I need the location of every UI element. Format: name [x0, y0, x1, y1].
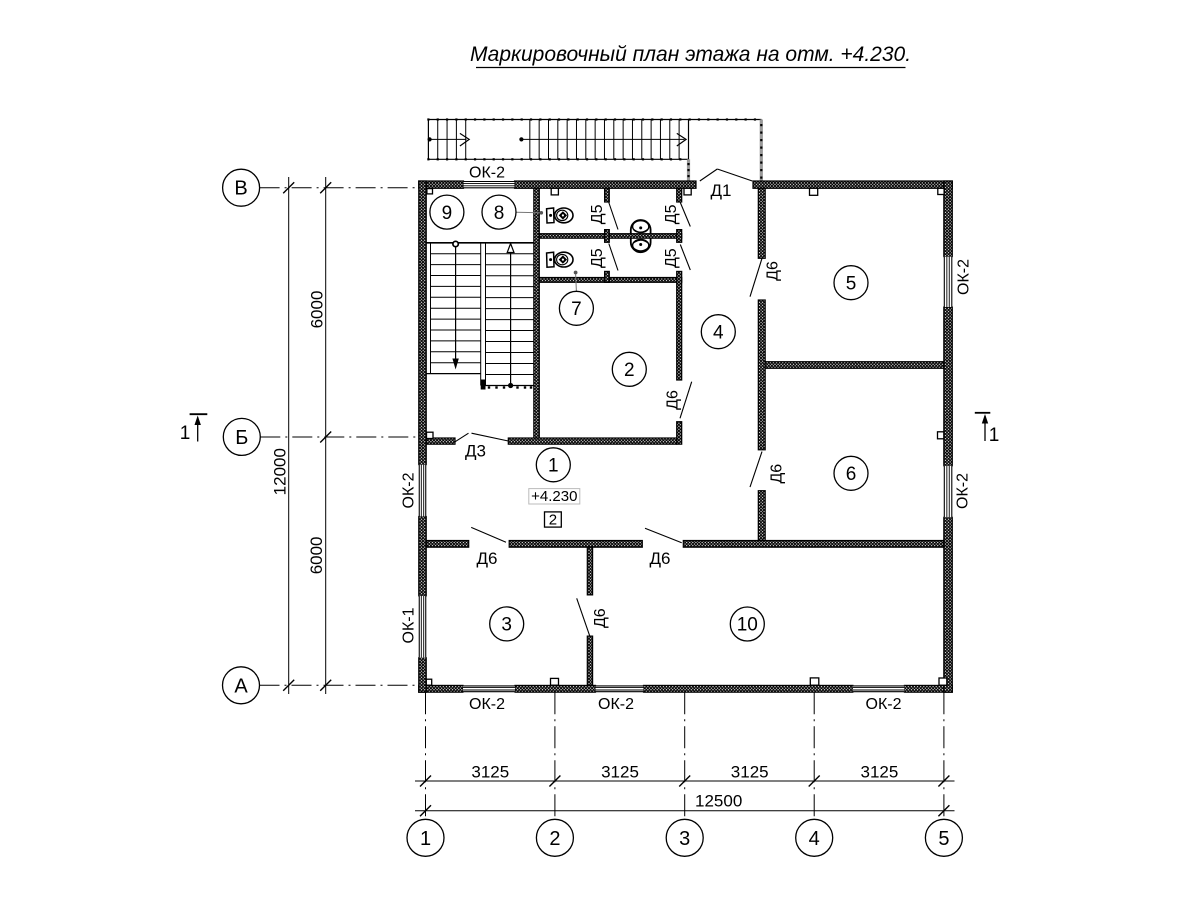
svg-text:1: 1 [548, 455, 559, 476]
svg-text:ОК-2: ОК-2 [469, 165, 505, 182]
svg-text:6: 6 [846, 464, 857, 485]
svg-text:6000: 6000 [308, 291, 327, 329]
svg-text:7: 7 [571, 299, 582, 320]
svg-text:Д6: Д6 [665, 390, 682, 410]
svg-text:Маркировочный план этажа на от: Маркировочный план этажа на отм. +4.230. [470, 43, 911, 66]
svg-text:Д1: Д1 [711, 181, 732, 200]
svg-text:ОК-2: ОК-2 [469, 696, 505, 713]
svg-text:1: 1 [180, 423, 191, 444]
svg-text:4: 4 [809, 828, 820, 850]
svg-text:ОК-2: ОК-2 [954, 473, 971, 509]
svg-text:Д6: Д6 [769, 464, 786, 484]
svg-text:ОК-2: ОК-2 [866, 696, 902, 713]
svg-text:2: 2 [624, 360, 635, 381]
svg-text:1: 1 [420, 828, 431, 850]
svg-text:6000: 6000 [307, 536, 326, 574]
svg-text:3: 3 [679, 828, 690, 850]
svg-text:3: 3 [501, 615, 512, 636]
svg-text:Д5: Д5 [589, 204, 606, 224]
svg-text:ОК-2: ОК-2 [956, 259, 973, 295]
svg-text:+4.230: +4.230 [531, 488, 577, 505]
svg-text:Д6: Д6 [650, 549, 671, 568]
svg-text:ОК-2: ОК-2 [598, 696, 634, 713]
svg-text:12500: 12500 [695, 792, 742, 811]
svg-text:Д6: Д6 [477, 549, 498, 568]
svg-text:3125: 3125 [860, 763, 898, 782]
svg-text:1: 1 [989, 425, 1000, 446]
svg-text:8: 8 [494, 203, 505, 224]
svg-text:4: 4 [713, 322, 724, 343]
svg-text:9: 9 [442, 203, 453, 224]
svg-text:3125: 3125 [471, 763, 509, 782]
svg-text:Д3: Д3 [465, 442, 486, 461]
svg-text:ОК-1: ОК-1 [400, 607, 417, 643]
svg-text:Д5: Д5 [589, 248, 606, 268]
svg-text:10: 10 [737, 615, 758, 636]
svg-text:2: 2 [549, 828, 560, 850]
svg-text:Б: Б [235, 427, 248, 449]
svg-text:12000: 12000 [270, 448, 289, 495]
svg-text:Д6: Д6 [765, 261, 782, 281]
svg-text:3125: 3125 [731, 763, 769, 782]
svg-text:ОК-2: ОК-2 [401, 472, 418, 508]
svg-text:3125: 3125 [601, 763, 639, 782]
svg-text:Д5: Д5 [663, 204, 680, 224]
svg-text:2: 2 [549, 512, 557, 529]
svg-text:В: В [234, 178, 247, 200]
svg-text:5: 5 [846, 273, 857, 294]
svg-text:Д5: Д5 [663, 248, 680, 268]
svg-text:Д6: Д6 [592, 608, 609, 628]
svg-text:А: А [234, 675, 248, 697]
svg-text:5: 5 [938, 828, 949, 850]
